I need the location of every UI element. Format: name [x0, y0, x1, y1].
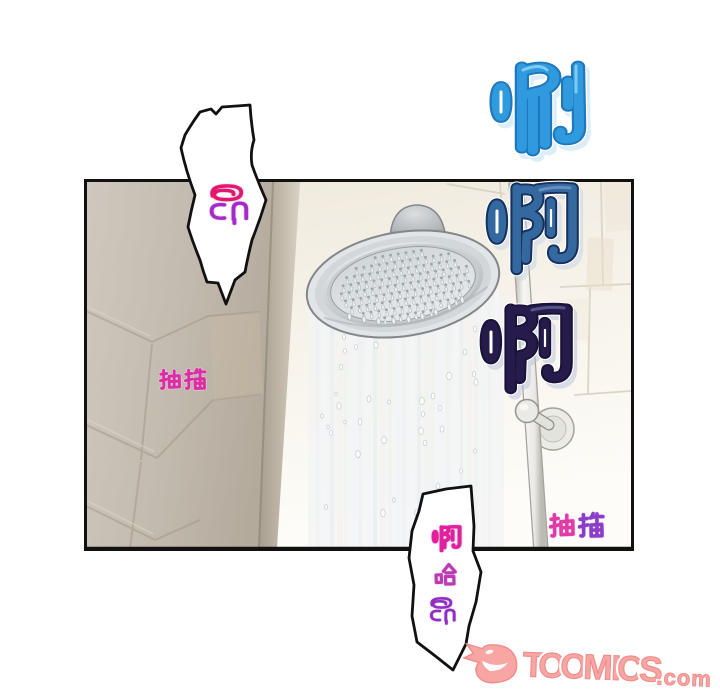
svg-text:.com: .com	[656, 664, 712, 691]
svg-text:M: M	[583, 648, 614, 688]
